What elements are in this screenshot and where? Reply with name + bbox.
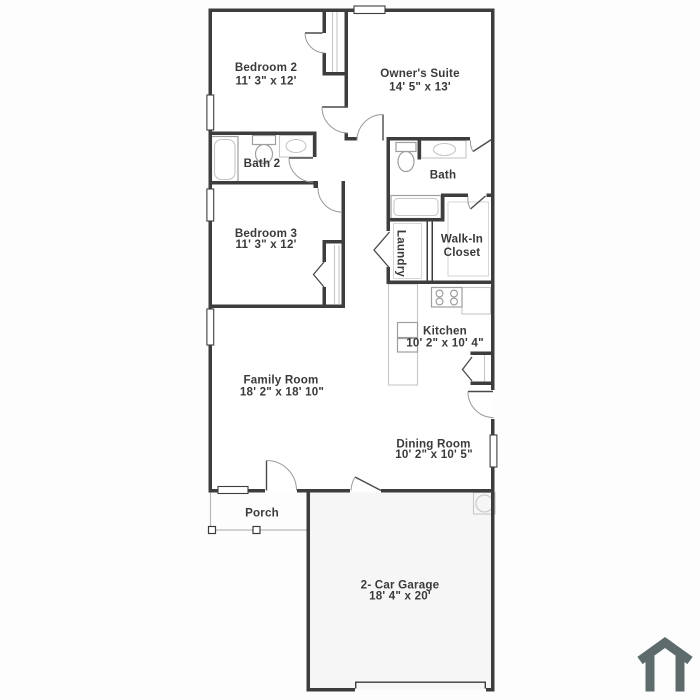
shower-icon xyxy=(391,196,441,219)
bathtub-icon xyxy=(212,137,239,183)
kitchen-dims: 10' 2" x 10' 4" xyxy=(406,337,484,350)
toilet-icon xyxy=(396,143,416,172)
garage-door xyxy=(355,682,486,683)
garage-dims: 18' 4" x 20' xyxy=(369,590,431,603)
walkin-closet-label-1: Walk-In xyxy=(441,233,483,246)
window xyxy=(207,95,214,130)
owners-suite-dims: 14' 5" x 13' xyxy=(389,81,451,94)
porch-post xyxy=(253,527,260,534)
window xyxy=(218,487,248,494)
bath2-label: Bath 2 xyxy=(244,157,281,170)
porch-post xyxy=(209,527,216,534)
bedroom3-dims: 11' 3" x 12' xyxy=(235,238,296,251)
porch-label: Porch xyxy=(245,507,279,520)
laundry-label: Laundry xyxy=(395,230,408,277)
bath-label: Bath xyxy=(430,169,457,182)
stove-icon xyxy=(432,288,463,308)
window xyxy=(354,6,385,14)
walkin-closet-label-2: Closet xyxy=(444,246,481,259)
window xyxy=(490,435,497,467)
bedroom2-label: Bedroom 2 xyxy=(235,61,297,74)
owners-suite-label: Owner's Suite xyxy=(380,67,460,80)
house-icon xyxy=(640,643,690,692)
floor-fills xyxy=(210,10,493,690)
window xyxy=(207,189,214,221)
bedroom2-dims: 11' 3" x 12' xyxy=(235,75,296,88)
family-room-dims: 18' 2" x 18' 10" xyxy=(240,386,324,399)
dining-room-dims: 10' 2" x 10' 5" xyxy=(395,448,473,461)
floor-plan-image: Bedroom 2 11' 3" x 12' Owner's Suite 14'… xyxy=(0,0,700,700)
window xyxy=(207,309,214,345)
